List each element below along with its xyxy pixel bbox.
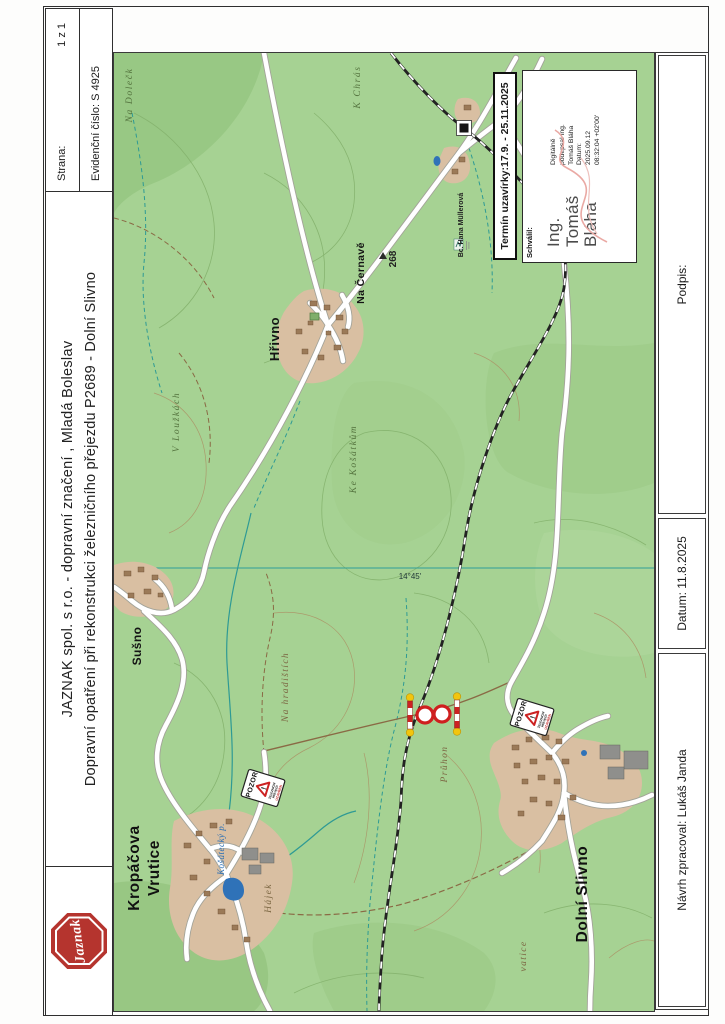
label-hajek: Hájek [264, 883, 274, 914]
label-na-doleck: Na Dolečk [125, 68, 135, 124]
company-title: JAZNAK spol. s r.o. - dopravní značení ,… [60, 341, 76, 718]
label-kropacova-vrutice: Vrutice [146, 840, 163, 896]
digital-line: Digitálně [550, 115, 559, 165]
digital-line: podepsal Ing. [559, 115, 568, 165]
signer-line: Tomáš [564, 195, 583, 247]
page-label: Strana: [56, 146, 68, 181]
label-meridian: 14°45' [399, 572, 422, 581]
closure-term-box: Termín uzavírky:17.9. - 25.11.2025 [493, 72, 517, 260]
label-surveyor: Bc. Hana Müllerová [458, 193, 465, 258]
digital-signature-details: Digitálně podepsal Ing. Tomáš Bláha Datu… [550, 115, 603, 165]
record-number-row: Evidenční číslo: S 4925 [80, 9, 113, 191]
closure-term-text: Termín uzavírky:17.9. - 25.11.2025 [499, 82, 511, 249]
approved-by-label: Schválil: [525, 227, 534, 258]
document-title: Dopravní opatření při rekonstrukci želez… [83, 272, 99, 786]
document-page: POZOR ! ŽELEZNIČNÍ PŘEJEZD UZAVŘEN POZOR… [0, 0, 725, 1024]
signer-name: Ing. Tomáš Bláha [545, 195, 601, 247]
digital-line: 08:32:04 +02'00' [594, 115, 603, 165]
railway-station-icon [457, 121, 472, 136]
label-na-hradistich: Na hradištích [281, 652, 291, 723]
designed-by-cell: Návrh zpracoval: Lukáš Janda [658, 653, 706, 1007]
label-pruhon: Průhon [439, 746, 450, 784]
digital-line: Tomáš Bláha [568, 115, 577, 165]
label-susno: Sušno [130, 627, 144, 666]
signature-cell: Podpis: [658, 55, 706, 514]
logo-text: Jaznak [68, 918, 90, 964]
left-header-strip: Jaznak JAZNAK spol. s r.o. - dopravní zn… [45, 8, 113, 1016]
label-hrivno: Hřivno [267, 317, 282, 361]
village-green [310, 313, 319, 320]
label-kropacova-vrutice: Kropáčova [126, 825, 143, 911]
page-value: 1 z 1 [56, 23, 68, 47]
signature-label: Podpis: [675, 264, 689, 304]
date-cell: Datum: 11.8.2025 [658, 518, 706, 649]
label-dolni-slivno: Dolní Slivno [574, 846, 591, 943]
label-v-louzkach: V Loužkách [172, 392, 182, 452]
signer-line: Ing. [545, 195, 564, 247]
label-na-cernave: Na Černavě [354, 242, 367, 304]
right-footer-strip: Návrh zpracoval: Lukáš Janda Datum: 11.8… [655, 52, 709, 1010]
label-vatice: vatice [519, 940, 529, 971]
label-k-chras: K Chrás [353, 65, 363, 109]
approval-box: Schválil: Ing. Tomáš Bláha Digitálně pod… [522, 70, 637, 263]
digital-line: Datum: [576, 115, 585, 165]
label-ke-kosatkum: Ke Košátkům [348, 425, 359, 495]
logo-cell: Jaznak [46, 866, 112, 1015]
signer-line: Bláha [582, 195, 601, 247]
page-number-row: Strana: 1 z 1 [46, 9, 80, 191]
digital-line: 2025.09.12 [585, 115, 594, 165]
label-kosatecky-potok: Košátecký p. [216, 823, 226, 876]
no-entry-sign [417, 707, 433, 723]
label-elevation: 268 [388, 250, 399, 267]
no-entry-sign [434, 706, 450, 722]
jaznak-logo-icon: Jaznak [51, 913, 107, 969]
title-cell: JAZNAK spol. s r.o. - dopravní značení ,… [46, 191, 112, 866]
page-info-cell: Strana: 1 z 1 Evidenční číslo: S 4925 [46, 9, 112, 191]
